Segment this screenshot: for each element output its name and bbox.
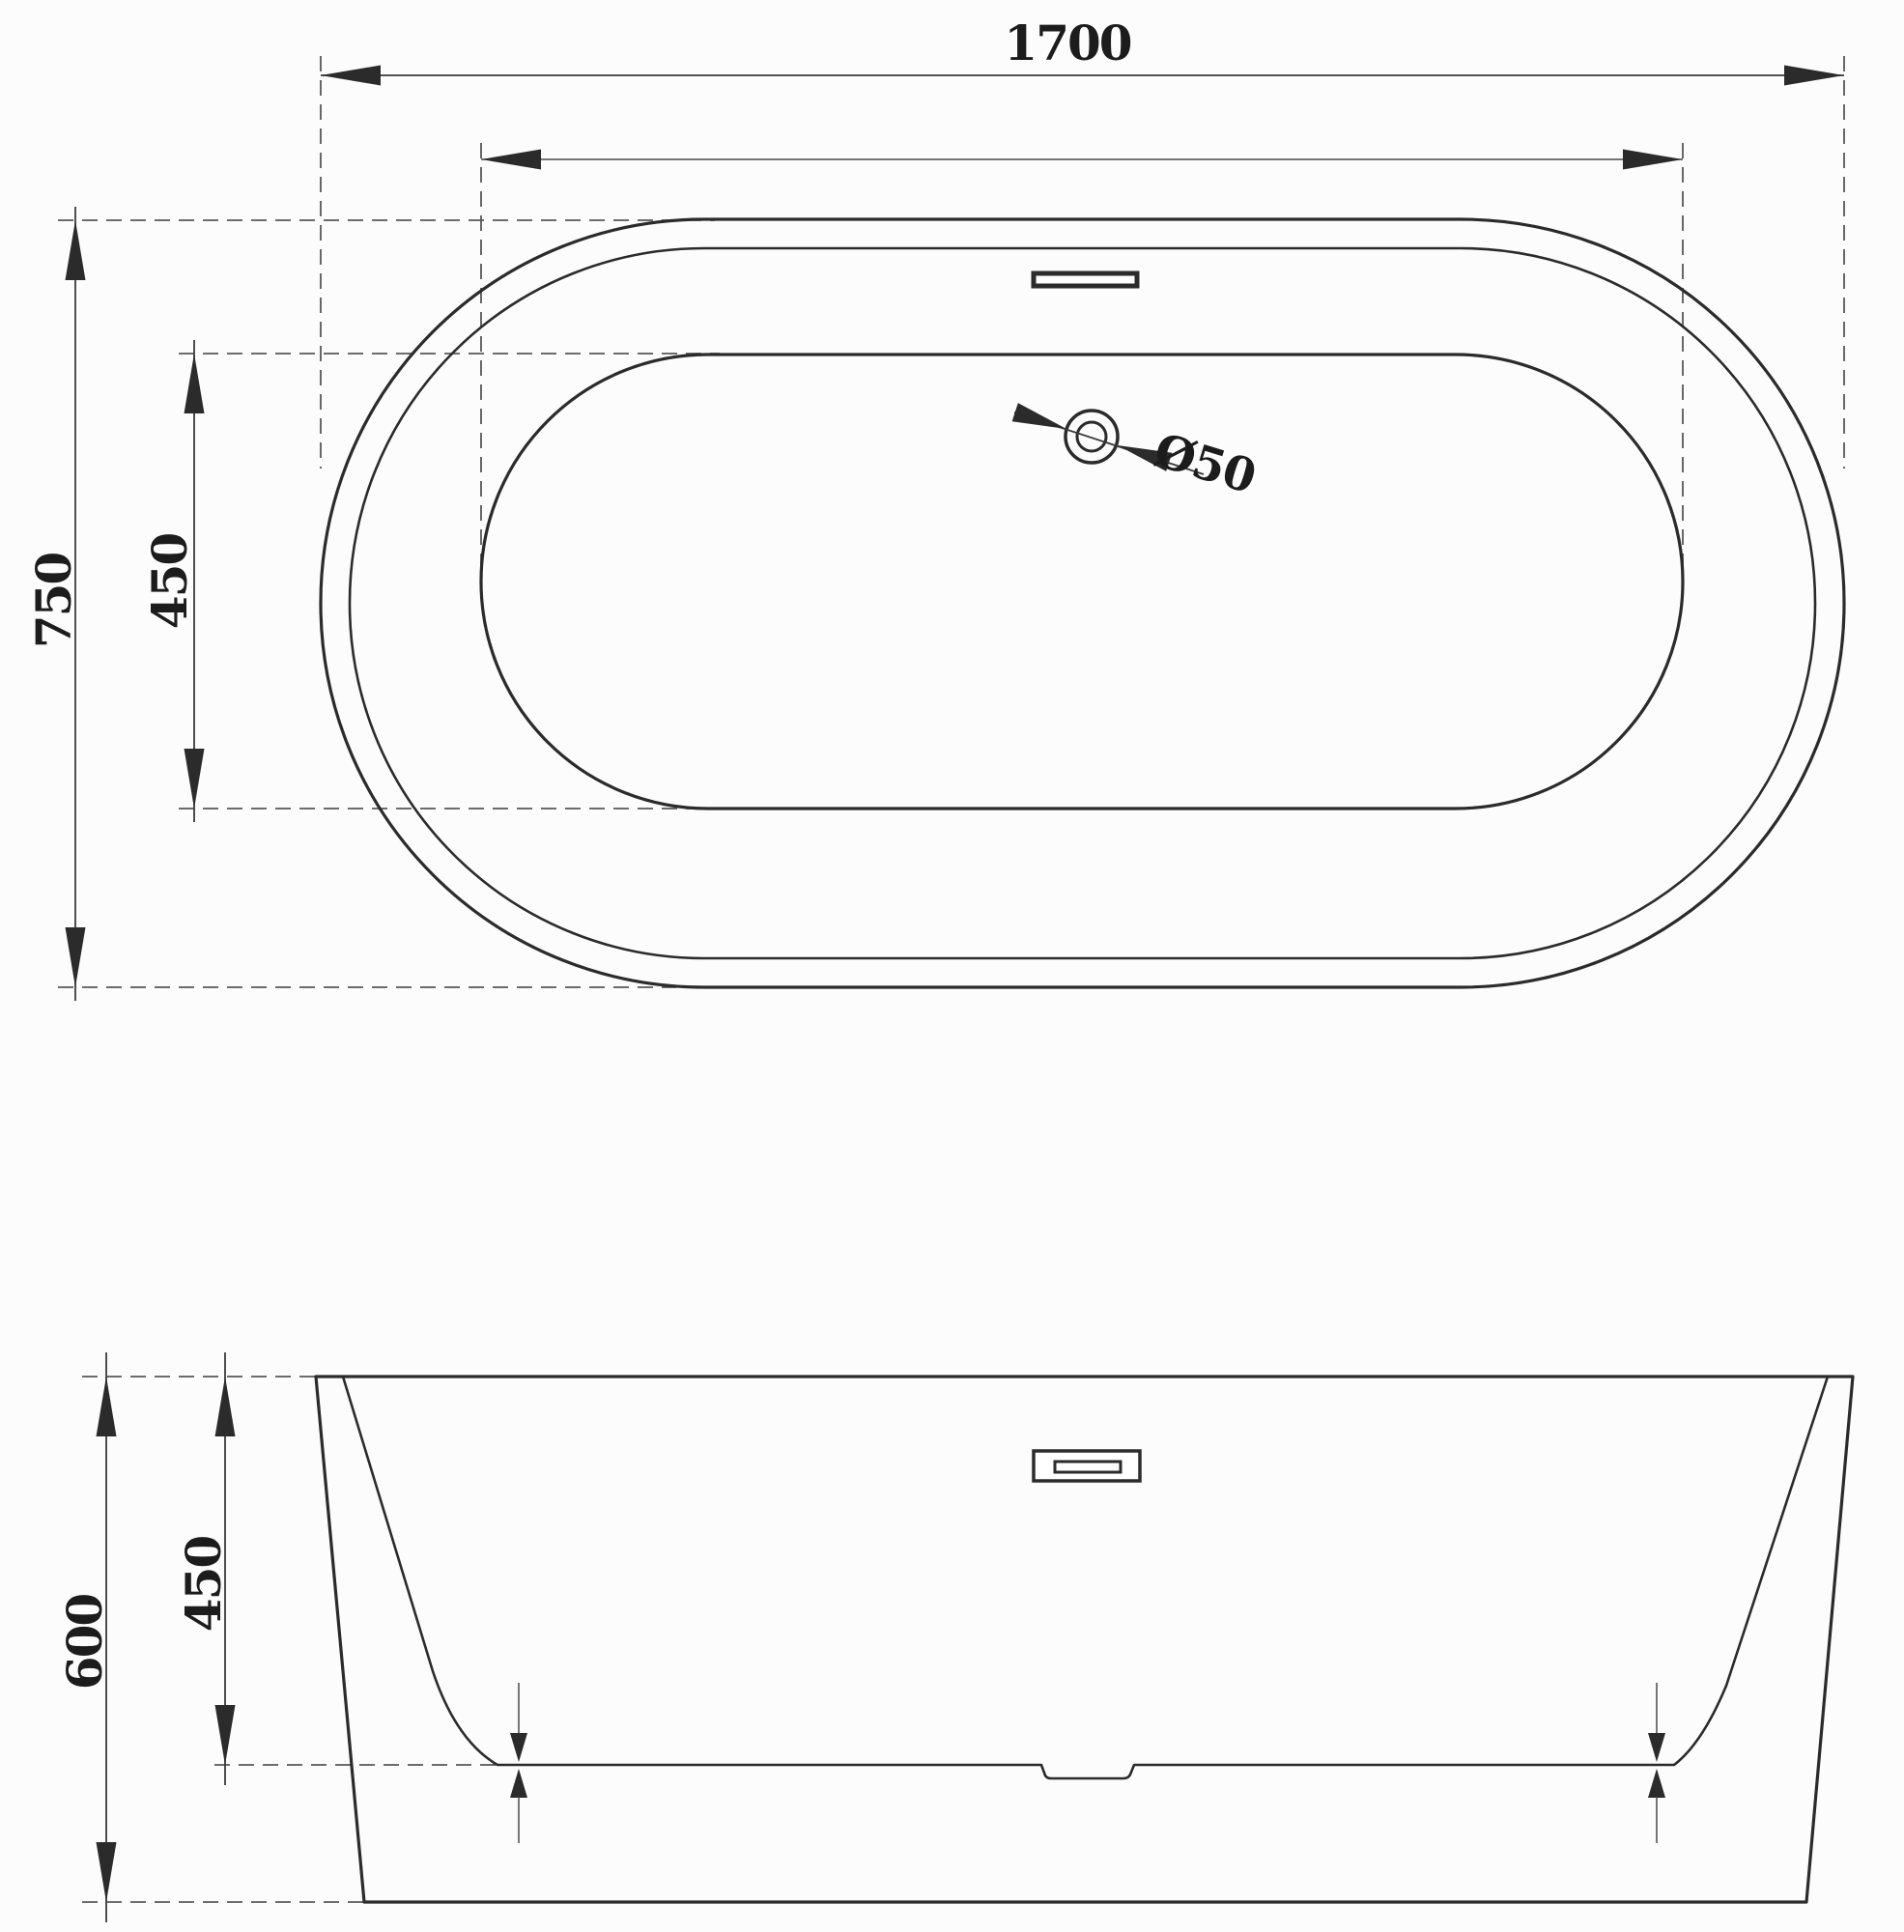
dim-arrow-450-plan-bottom	[185, 749, 205, 809]
dim-arrow-1700-left	[321, 66, 381, 86]
marker-arrow-down	[1648, 1733, 1665, 1762]
overflow-slot-elevation	[1055, 1462, 1121, 1472]
dim-label-overall-length: 1700	[1004, 14, 1130, 71]
basin-edge	[481, 355, 1683, 809]
dim-arrow-inner-right	[1623, 150, 1683, 170]
dim-label-overall-width: 750	[25, 554, 82, 649]
dim-arrow-750-top	[66, 220, 86, 280]
drain-outer-circle	[1066, 411, 1118, 463]
dim-arrow-450-elev-bottom	[215, 1705, 236, 1765]
dim-arrow-inner-left	[481, 150, 541, 170]
elevation-view: 600 450	[56, 1352, 1853, 1922]
dim-arrow-450-elev-top	[215, 1377, 236, 1436]
drain-diameter-label: Ø50	[1148, 423, 1261, 504]
dim-label-overall-height: 600	[56, 1595, 113, 1690]
outer-rim	[321, 219, 1844, 987]
marker-arrow-up	[1648, 1769, 1665, 1798]
marker-arrow-up	[510, 1769, 527, 1798]
dim-arrow-750-bottom	[66, 927, 86, 987]
dim-arrow-450-plan-top	[185, 354, 205, 413]
dim-arrow-1700-right	[1784, 66, 1844, 86]
floor-thickness-marker-left	[510, 1683, 527, 1843]
tub-inner-profile	[343, 1377, 1828, 1778]
overflow-slot-plan	[1034, 273, 1137, 286]
drain-inner-circle	[1077, 422, 1106, 451]
dim-label-inner-width: 450	[141, 534, 198, 630]
plan-view: Ø50 1700 750 450	[25, 14, 1844, 1001]
drain-leader-arrow-left	[1012, 403, 1069, 438]
dim-arrow-600-top	[97, 1377, 117, 1436]
drawing-sheet: Ø50 1700 750 450	[0, 0, 1904, 1932]
marker-arrow-down	[510, 1733, 527, 1762]
dim-label-inner-depth: 450	[175, 1537, 232, 1633]
bathtub-technical-drawing: Ø50 1700 750 450	[0, 0, 1904, 1932]
floor-thickness-marker-right	[1648, 1683, 1665, 1843]
dim-arrow-600-bottom	[97, 1842, 117, 1902]
